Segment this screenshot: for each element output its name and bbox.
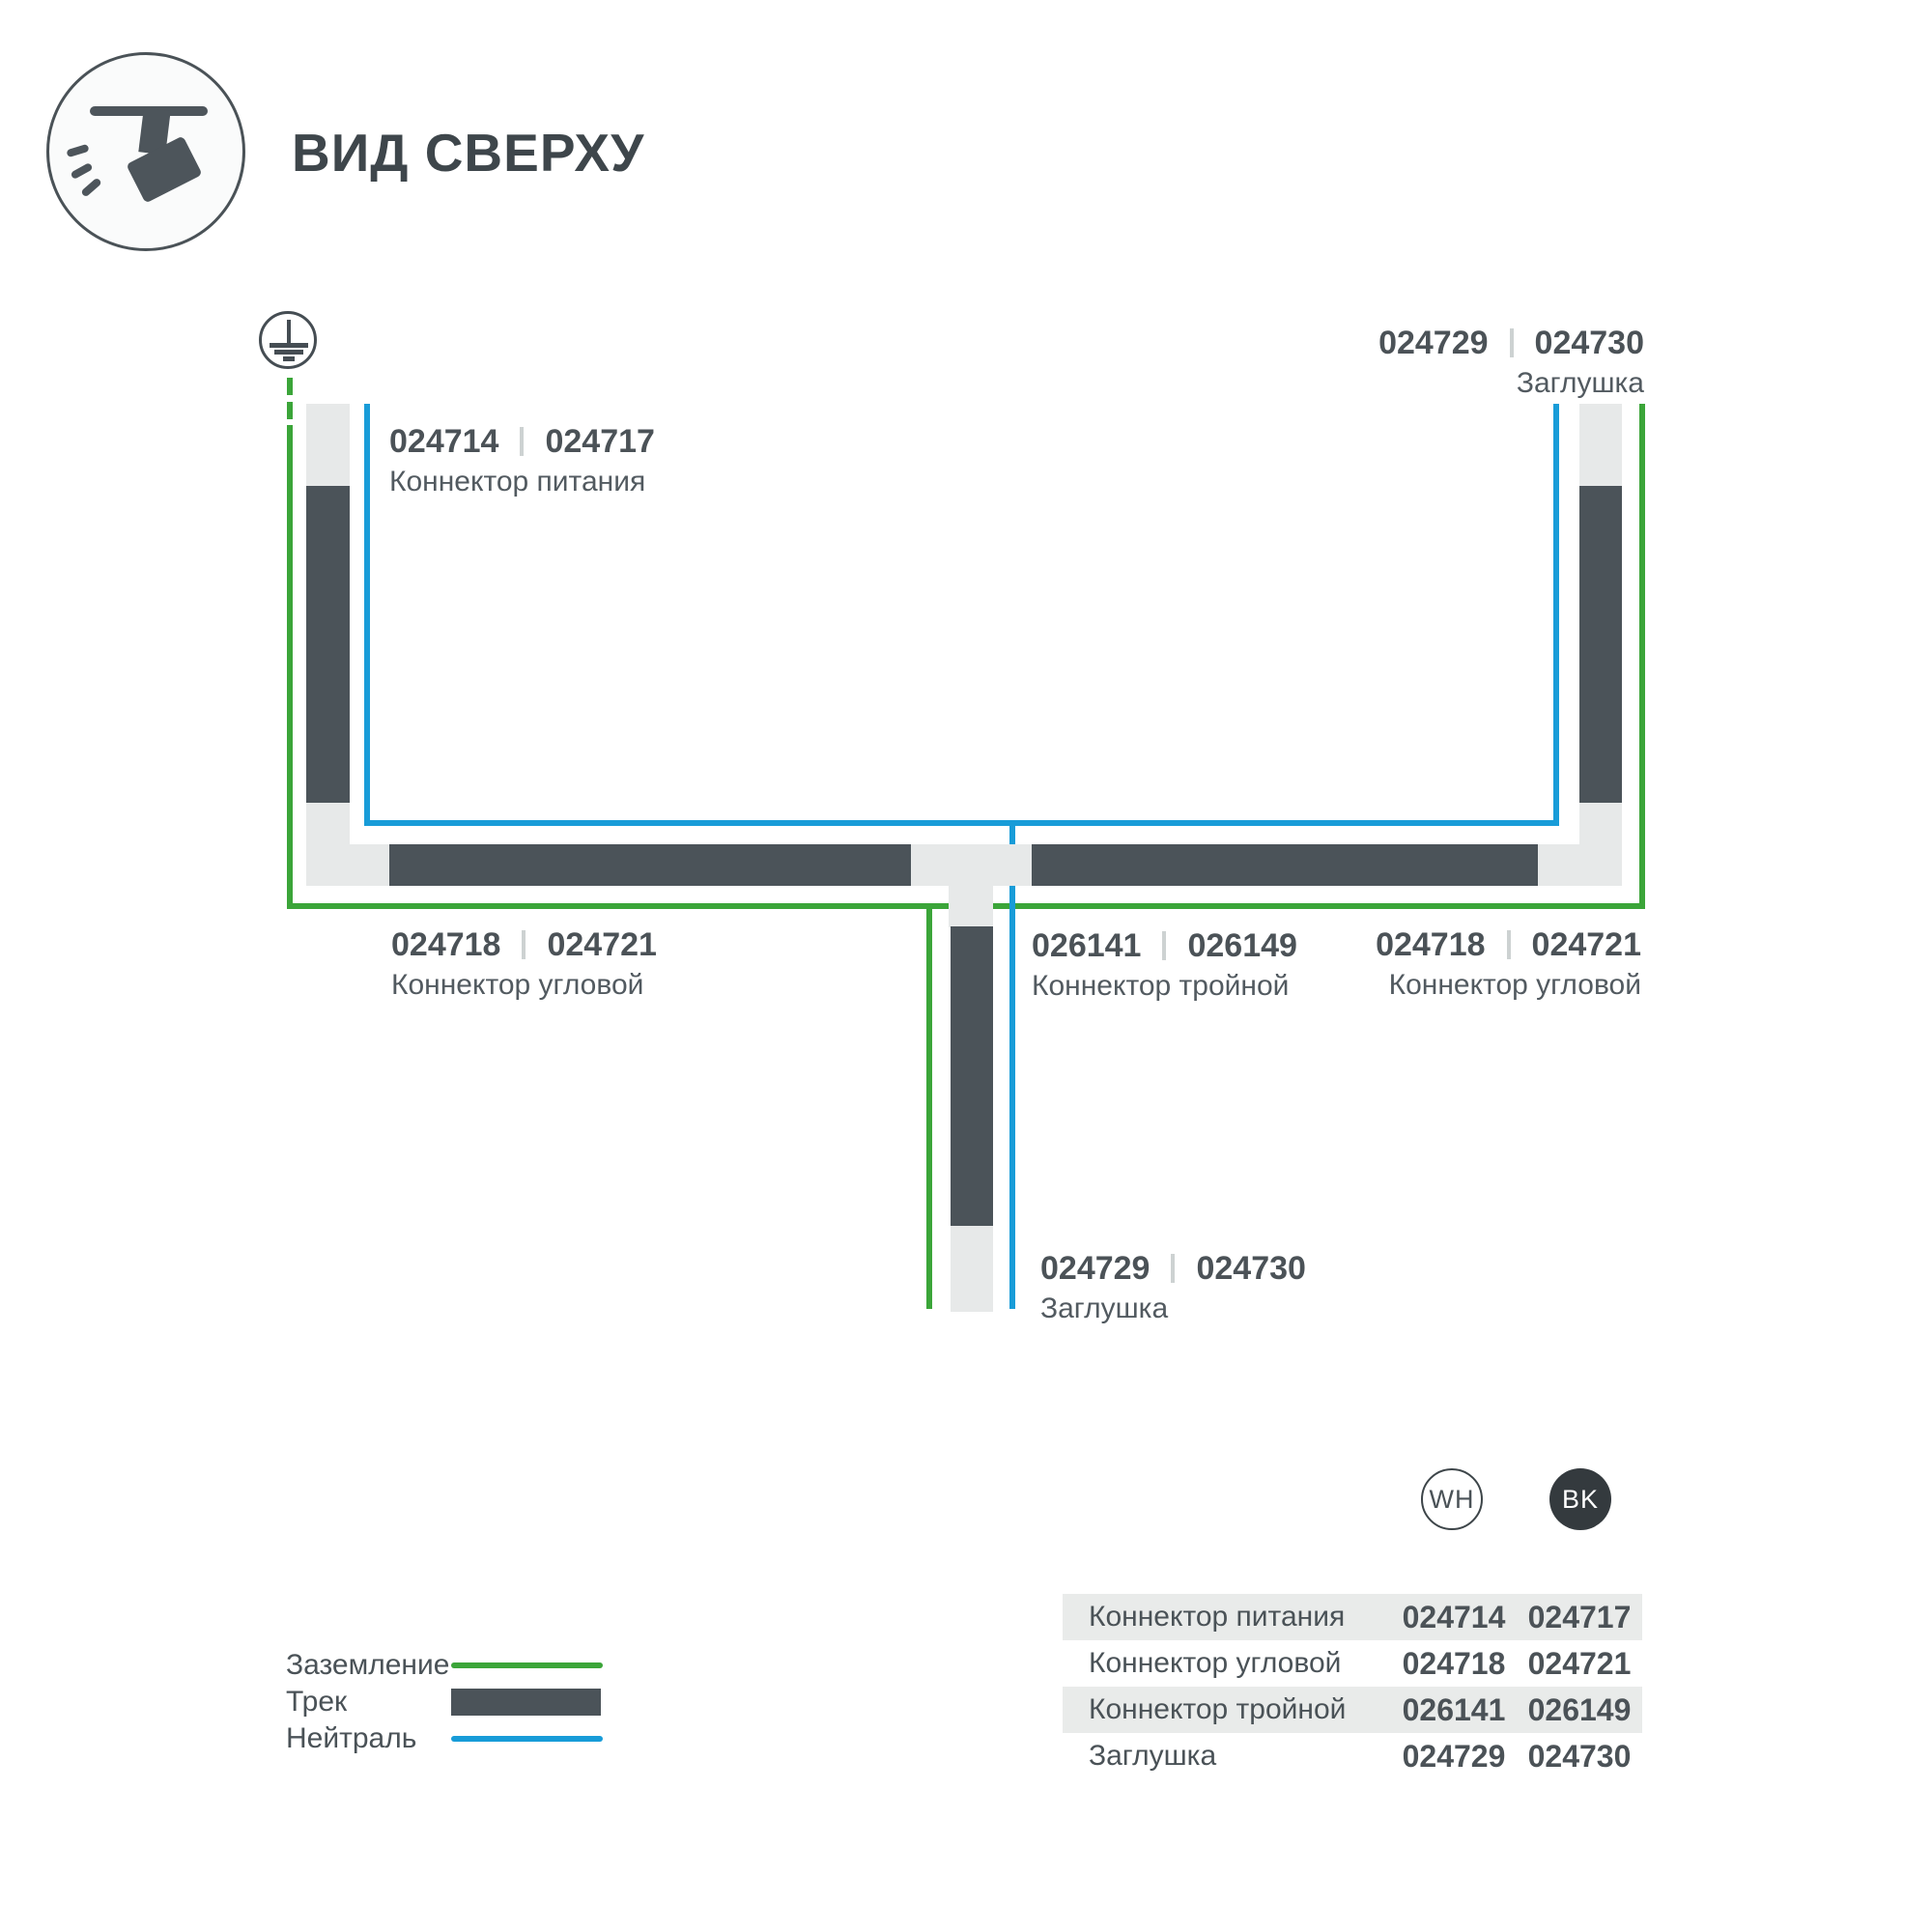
- tee-connector-piece: [911, 844, 1032, 886]
- ground-symbol-stroke: [283, 356, 295, 361]
- label-power-connector: 024714 024717 Коннектор питания: [389, 425, 655, 497]
- label-codes: 024729 024730: [1040, 1252, 1306, 1285]
- track-segment-bottom-left: [389, 844, 911, 886]
- ground-wire-dash: [287, 378, 293, 395]
- ground-wire-branch: [926, 903, 932, 1309]
- ground-symbol-stroke: [287, 320, 291, 345]
- code-separator: [1510, 328, 1514, 357]
- tee-connector-stem-piece: [949, 886, 993, 927]
- track-segment-bottom-right: [1032, 844, 1538, 886]
- ground-wire-left: [287, 425, 293, 909]
- legend-item-track: Трек: [286, 1684, 603, 1720]
- code-separator: [522, 930, 526, 959]
- track-segment-left: [306, 486, 350, 803]
- legend-label: Нейтраль: [286, 1722, 451, 1755]
- badge-bk-label: BK: [1562, 1485, 1599, 1515]
- label-codes: 026141 026149: [1032, 929, 1297, 962]
- code-wh: 024729: [1040, 1252, 1150, 1285]
- legend-label: Трек: [286, 1686, 451, 1719]
- code-separator: [1507, 930, 1511, 959]
- corner-connector-right-piece: [1579, 803, 1622, 886]
- page-title: ВИД СВЕРХУ: [292, 124, 644, 182]
- track-segment-right: [1579, 486, 1622, 803]
- spotlight-head-icon: [126, 135, 202, 203]
- part-name: Коннектор тройной: [1032, 971, 1297, 1002]
- code-wh: 024718: [391, 928, 500, 961]
- label-codes: 024718 024721: [1376, 928, 1641, 961]
- code-separator: [1171, 1254, 1175, 1283]
- part-name: Заглушка: [1040, 1293, 1306, 1324]
- row-name: Коннектор тройной: [1063, 1693, 1391, 1726]
- legend-item-ground: Заземление: [286, 1647, 603, 1684]
- label-codes: 024718 024721: [391, 928, 657, 961]
- parts-table: Коннектор питания 024714 024717 Коннекто…: [1063, 1594, 1642, 1779]
- row-code-wh: 026141: [1391, 1692, 1517, 1728]
- power-connector-piece: [306, 404, 350, 486]
- row-name: Коннектор питания: [1063, 1601, 1391, 1634]
- code-wh: 026141: [1032, 929, 1141, 962]
- label-codes: 024714 024717: [389, 425, 655, 458]
- legend-label: Заземление: [286, 1649, 451, 1682]
- label-tee-connector: 026141 026149 Коннектор тройной: [1032, 929, 1297, 1002]
- track-light-icon-circle: [46, 52, 245, 251]
- light-ray-icon: [71, 162, 94, 180]
- table-row: Коннектор питания 024714 024717: [1063, 1594, 1642, 1640]
- code-wh: 024729: [1378, 327, 1488, 359]
- color-badge-black: BK: [1549, 1468, 1611, 1530]
- badge-wh-label: WH: [1430, 1485, 1475, 1515]
- code-wh: 024714: [389, 425, 498, 458]
- code-bk: 026149: [1187, 929, 1296, 962]
- color-badge-white: WH: [1421, 1468, 1483, 1530]
- code-bk: 024717: [545, 425, 654, 458]
- row-code-bk: 026149: [1517, 1692, 1642, 1728]
- label-endcap-bottom: 024729 024730 Заглушка: [1040, 1252, 1306, 1324]
- code-separator: [520, 427, 524, 456]
- endcap-connector-top-piece: [1579, 404, 1622, 486]
- neutral-wire-right: [1553, 404, 1559, 826]
- table-row: Коннектор тройной 026141 026149: [1063, 1687, 1642, 1733]
- row-code-bk: 024721: [1517, 1646, 1642, 1682]
- ground-wire-right: [1639, 404, 1645, 909]
- row-code-bk: 024730: [1517, 1739, 1642, 1775]
- label-endcap-top: 024729 024730 Заглушка: [1378, 327, 1644, 399]
- corner-connector-left-piece: [350, 844, 389, 886]
- endcap-connector-bottom-piece: [951, 1226, 993, 1312]
- label-corner-connector-right: 024718 024721 Коннектор угловой: [1376, 928, 1641, 1001]
- row-code-wh: 024729: [1391, 1739, 1517, 1775]
- track-bar-swatch: [451, 1689, 601, 1716]
- corner-connector-left-piece: [306, 803, 350, 886]
- neutral-wire-left: [364, 404, 370, 826]
- light-ray-icon: [80, 177, 102, 197]
- page: ВИД СВЕРХУ 024714 024717 Коннектор питан…: [0, 0, 1932, 1932]
- row-code-wh: 024714: [1391, 1600, 1517, 1635]
- label-corner-connector-left: 024718 024721 Коннектор угловой: [391, 928, 657, 1001]
- table-row: Коннектор угловой 024718 024721: [1063, 1640, 1642, 1687]
- code-separator: [1162, 931, 1166, 960]
- neutral-wire-branch: [1009, 820, 1015, 1309]
- legend-item-neutral: Нейтраль: [286, 1720, 603, 1757]
- light-ray-icon: [66, 144, 89, 157]
- ground-symbol-stroke: [274, 350, 303, 355]
- neutral-wire-middle: [364, 820, 1559, 826]
- code-bk: 024730: [1535, 327, 1644, 359]
- part-name: Коннектор угловой: [1376, 970, 1641, 1001]
- ground-symbol-stroke: [270, 343, 308, 348]
- part-name: Коннектор питания: [389, 467, 655, 497]
- code-bk: 024721: [547, 928, 656, 961]
- row-name: Заглушка: [1063, 1740, 1391, 1773]
- ground-wire-dash: [287, 402, 293, 419]
- legend: Заземление Трек Нейтраль: [286, 1647, 603, 1757]
- part-name: Заглушка: [1378, 368, 1644, 399]
- blue-line-swatch: [451, 1736, 603, 1742]
- table-row: Заглушка 024729 024730: [1063, 1733, 1642, 1779]
- green-line-swatch: [451, 1662, 603, 1668]
- corner-connector-right-piece: [1538, 844, 1579, 886]
- code-bk: 024721: [1532, 928, 1641, 961]
- code-bk: 024730: [1196, 1252, 1305, 1285]
- label-codes: 024729 024730: [1378, 327, 1644, 359]
- row-code-bk: 024717: [1517, 1600, 1642, 1635]
- row-code-wh: 024718: [1391, 1646, 1517, 1682]
- code-wh: 024718: [1376, 928, 1485, 961]
- track-segment-branch: [951, 926, 993, 1226]
- row-name: Коннектор угловой: [1063, 1647, 1391, 1680]
- part-name: Коннектор угловой: [391, 970, 657, 1001]
